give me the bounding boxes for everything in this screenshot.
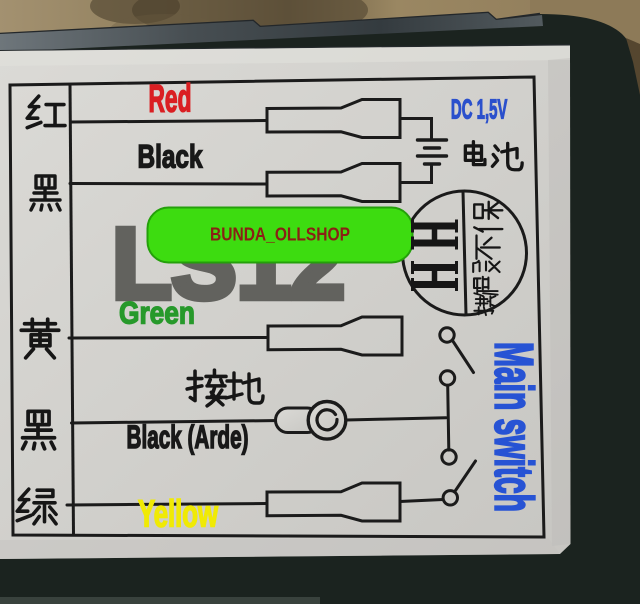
svg-text:Yellow: Yellow — [138, 494, 218, 536]
svg-text:Black (Arde): Black (Arde) — [127, 419, 249, 455]
svg-text:Black: Black — [138, 139, 204, 175]
svg-text:Green: Green — [119, 295, 195, 331]
svg-text:Red: Red — [149, 77, 192, 120]
svg-text:DC 1,5V: DC 1,5V — [451, 93, 508, 124]
svg-text:Main switch: Main switch — [484, 342, 544, 512]
svg-text:BUNDA_OLLSHOP: BUNDA_OLLSHOP — [210, 225, 350, 245]
